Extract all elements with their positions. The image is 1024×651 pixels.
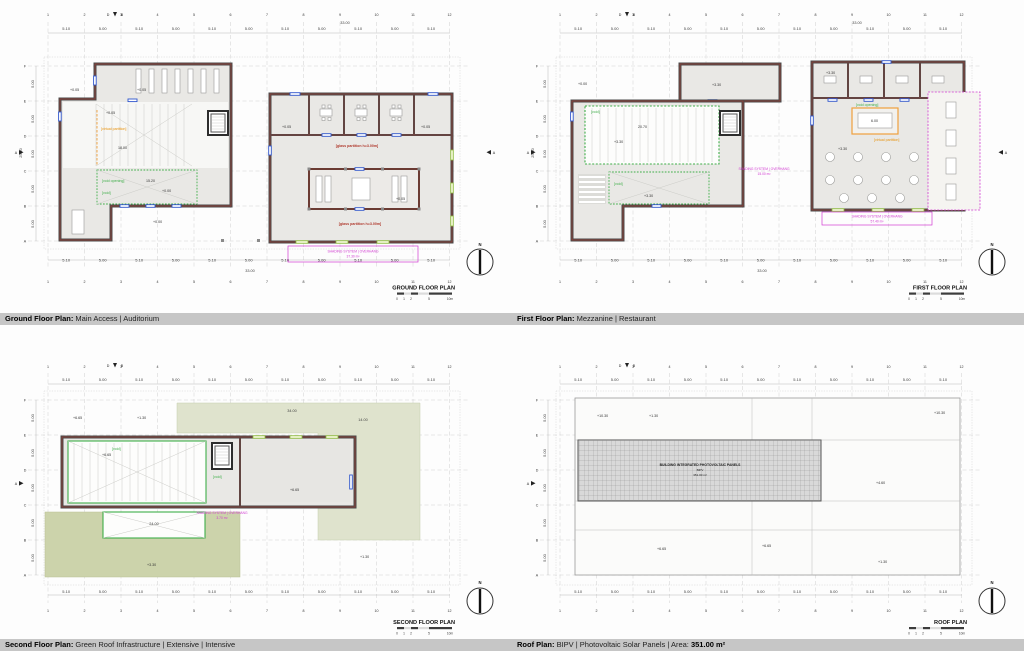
grid-numbers-top-0: 1	[47, 13, 49, 17]
level-label: +3.30	[147, 563, 156, 567]
grid-numbers-bottom-5: 6	[230, 609, 232, 613]
grid-numbers-top-5: 6	[742, 365, 744, 369]
quadrant-first-floor: 123456789101112 123456789101112 FEDCBA 5…	[512, 0, 1024, 325]
grid-numbers-bottom-4: 5	[705, 609, 707, 613]
scale-tick: 2	[410, 297, 412, 301]
dims-bottom-3: 5.00	[172, 258, 181, 263]
caption-second-floor: Second Floor Plan: Green Roof Infrastruc…	[0, 639, 512, 651]
dims-top-5: 5.00	[245, 26, 254, 31]
dims-bottom-2: 5.10	[647, 258, 656, 263]
grid-letters-left-4: B	[24, 538, 27, 542]
section-mark-a: A	[527, 151, 530, 155]
shading-overhang-label: SHADING SYSTEM | OVERHANG	[851, 215, 902, 219]
dims-top-1: 5.00	[99, 26, 108, 31]
dims-top-3: 5.00	[172, 377, 181, 382]
void-label: [void]	[102, 191, 111, 195]
dim-label: 34.00	[287, 409, 297, 413]
grid-numbers-bottom-5: 6	[230, 280, 232, 284]
void-label: [void]	[213, 475, 222, 479]
dims-bottom-2: 5.10	[647, 589, 656, 594]
grid-numbers-top-8: 9	[339, 365, 341, 369]
caption-text: Mezzanine | Restaurant	[575, 314, 656, 323]
dims-bottom-5: 5.00	[245, 258, 254, 263]
grid-numbers-bottom-11: 12	[448, 280, 452, 284]
dims-top: 5.105.005.105.005.105.005.105.005.105.00…	[574, 26, 948, 31]
dims-top-6: 5.10	[281, 26, 290, 31]
void-opening-label: [void opening]	[102, 179, 124, 183]
dims-bottom-4: 5.10	[208, 258, 217, 263]
first-floor-drawing: 123456789101112 123456789101112 FEDCBA 5…	[512, 0, 1024, 313]
architectural-sheet: 123456789101112 123456789101112 FEDCBA 5…	[0, 0, 1024, 651]
grid-numbers-top-10: 11	[923, 13, 927, 17]
dims-bottom-9: 5.00	[903, 589, 912, 594]
glass-partition-label: [glass partition h=3.00m]	[336, 144, 378, 148]
dims-bottom-6: 5.10	[793, 258, 802, 263]
grid-letters-left-5: A	[536, 573, 539, 577]
building	[62, 436, 355, 507]
grid-numbers-top-11: 12	[448, 365, 452, 369]
dims-top-5: 5.00	[245, 377, 254, 382]
grid-numbers-bottom-6: 7	[266, 280, 268, 284]
pv-subtitle-label: BIPV	[697, 468, 704, 472]
level-label: +0.05	[396, 197, 405, 201]
grid-numbers-bottom-10: 11	[923, 609, 927, 613]
shading-overhang-area: 37.30 m²	[346, 255, 360, 259]
dims-bottom-6: 5.10	[281, 589, 290, 594]
grid-numbers-bottom-9: 10	[887, 280, 891, 284]
level-label: +0.05	[137, 88, 146, 92]
grid-numbers-bottom-9: 10	[375, 280, 379, 284]
dims-bottom-2: 5.10	[135, 258, 144, 263]
scale-tick: 10m	[959, 632, 966, 636]
level-label: +6.65	[290, 488, 299, 492]
level-label: +6.65	[102, 453, 111, 457]
level-label: +0.05	[70, 88, 79, 92]
dims-bottom-4: 5.10	[720, 589, 729, 594]
total-dim-top: 33.00	[852, 21, 862, 25]
level-label: +0.00	[578, 82, 587, 86]
section-arrow-icon	[113, 363, 117, 368]
dims-bottom-1: 5.00	[611, 258, 620, 263]
dims-left-1: 5.00	[542, 448, 547, 457]
quadrant-second-floor: 123456789101112 123456789101112 FEDCBA 5…	[0, 325, 512, 651]
grid-numbers-top-1: 2	[84, 13, 86, 17]
grid-letters-left-5: A	[536, 239, 539, 243]
shading-overhang-label: SHADING SYSTEM | OVERHANG	[327, 250, 378, 254]
grid-numbers-bottom-11: 12	[960, 609, 964, 613]
level-label: +3.30	[712, 83, 721, 87]
level-label: +3.30	[838, 147, 847, 151]
dim-label: 24.00	[149, 522, 159, 526]
dims-top-9: 5.00	[903, 26, 912, 31]
north-label: N	[990, 242, 993, 247]
scale-bar: 0 1 2 5 10m	[908, 627, 965, 636]
grid-numbers-bottom-8: 9	[851, 280, 853, 284]
dims-left-2: 5.00	[30, 149, 35, 158]
caption-prefix: Second Floor Plan:	[5, 640, 73, 649]
dims-top-4: 5.10	[720, 26, 729, 31]
dim-label: 6.00	[871, 119, 878, 123]
grid-numbers-bottom-5: 6	[742, 280, 744, 284]
shading-overhang-label: SHADING SYSTEM | OVERHANG	[738, 167, 789, 171]
level-label: +6.65	[657, 547, 666, 551]
roof-plan-drawing: 123456789101112 123456789101112 FEDCBA 5…	[512, 325, 1024, 639]
grid-numbers-top-9: 10	[887, 365, 891, 369]
scale-tick: 0	[908, 632, 910, 636]
dims-bottom-8: 5.10	[866, 589, 875, 594]
dims-left-0: 5.00	[542, 79, 547, 88]
dims-top-10: 5.10	[939, 26, 948, 31]
virtual-partition-label: [virtual partition]	[874, 138, 899, 142]
dims-top-6: 5.10	[793, 377, 802, 382]
grid-numbers-bottom-3: 4	[669, 280, 671, 284]
grid-numbers-top-9: 10	[375, 365, 379, 369]
grid-numbers-top-9: 10	[887, 13, 891, 17]
connector-wing	[680, 64, 780, 102]
grid-numbers-top-0: 1	[47, 365, 49, 369]
upper-room	[242, 440, 350, 502]
dims-top-8: 5.10	[354, 26, 363, 31]
void-label: [void]	[112, 447, 121, 451]
grid-numbers-bottom-0: 1	[47, 280, 49, 284]
dims-left-0: 5.00	[542, 413, 547, 422]
section-mark-d: D	[619, 13, 622, 17]
grid-numbers-bottom-2: 3	[120, 280, 122, 284]
level-label: +10.30	[934, 411, 945, 415]
dim-label: 20.70	[638, 125, 647, 129]
grid-numbers-bottom-0: 1	[47, 609, 49, 613]
grid-numbers-bottom-1: 2	[84, 280, 86, 284]
level-label: +0.05	[106, 111, 115, 115]
dims-bottom-8: 5.10	[866, 258, 875, 263]
dims-top-2: 5.10	[135, 26, 144, 31]
grid-numbers-bottom-1: 2	[596, 609, 598, 613]
dims-top-4: 5.10	[720, 377, 729, 382]
scale-tick: 10m	[447, 632, 454, 636]
scale-tick: 2	[922, 297, 924, 301]
grid-letters-left-4: B	[536, 538, 539, 542]
north-label: N	[478, 242, 481, 247]
dims-top-7: 5.00	[318, 377, 327, 382]
grid-letters-left-5: A	[24, 239, 27, 243]
scale-bar: 0 1 2 5 10m	[908, 293, 965, 302]
grid-numbers-bottom-3: 4	[669, 609, 671, 613]
dims-bottom-3: 5.00	[172, 589, 181, 594]
grid-numbers-top-8: 9	[851, 365, 853, 369]
section-mark-a: A	[1005, 151, 1008, 155]
dims-bottom-5: 5.00	[245, 589, 254, 594]
level-label: +4.60	[876, 481, 885, 485]
level-label: +3.30	[614, 140, 623, 144]
grid-numbers-top-5: 6	[742, 13, 744, 17]
scale-tick: 1	[915, 632, 917, 636]
dims-top-4: 5.10	[208, 377, 217, 382]
dims-bottom-9: 5.00	[903, 258, 912, 263]
grid-numbers-top-6: 7	[778, 13, 780, 17]
dims-bottom-5: 5.00	[757, 258, 766, 263]
grid-letters-left-1: E	[536, 99, 539, 103]
shading-overhang-area: 57.40 m²	[870, 220, 884, 224]
scale-tick: 5	[940, 632, 942, 636]
dims-bottom-6: 5.10	[793, 589, 802, 594]
dims-top-1: 5.00	[99, 377, 108, 382]
grid-numbers-top-1: 2	[84, 365, 86, 369]
grid-numbers-top-3: 4	[157, 13, 159, 17]
dims-bottom-7: 5.00	[830, 258, 839, 263]
scale-tick: 5	[428, 297, 430, 301]
dims-top-0: 5.10	[62, 26, 71, 31]
dims-left-1: 5.00	[30, 114, 35, 123]
scale-tick: 2	[922, 632, 924, 636]
plaza-column	[221, 239, 224, 242]
dims-left-3: 5.00	[30, 184, 35, 193]
dims-bottom-3: 5.00	[684, 589, 693, 594]
grid-letters-left-4: B	[24, 204, 27, 208]
grid-numbers-bottom-4: 5	[193, 609, 195, 613]
grid-numbers-bottom-9: 10	[375, 609, 379, 613]
dims-left-2: 5.00	[30, 483, 35, 492]
total-dim-top: 33.00	[340, 21, 350, 25]
second-floor-drawing: 123456789101112 123456789101112 FEDCBA 5…	[0, 325, 512, 639]
grid-numbers-bottom-7: 8	[303, 609, 305, 613]
dims-left: 5.005.005.005.005.00	[542, 413, 547, 562]
grid-numbers-top-11: 12	[960, 13, 964, 17]
stair-core	[208, 111, 228, 135]
shading-overhang-area: 15.00 m²	[757, 172, 771, 176]
louver-area	[578, 174, 606, 204]
grid-numbers-top-6: 7	[266, 365, 268, 369]
ground-floor-drawing: 123456789101112 123456789101112 FEDCBA 5…	[0, 0, 512, 313]
grid-numbers-top-4: 5	[705, 13, 707, 17]
grid-numbers-bottom-2: 3	[632, 609, 634, 613]
grid-numbers-bottom-5: 6	[742, 609, 744, 613]
lobby-desk	[72, 210, 84, 234]
dim-label: 14.00	[358, 418, 368, 422]
grid-letters-left-3: C	[536, 503, 539, 507]
dims-bottom: 5.105.005.105.005.105.005.105.005.105.00…	[574, 589, 948, 594]
grid-numbers-bottom-2: 3	[120, 609, 122, 613]
dims-bottom-1: 5.00	[99, 258, 108, 263]
scale-tick: 10m	[959, 297, 966, 301]
scale-tick: 1	[403, 632, 405, 636]
grid-letters-left-0: F	[536, 64, 539, 68]
dims-top-8: 5.10	[866, 26, 875, 31]
auditorium	[308, 168, 421, 211]
grid-numbers-top-3: 4	[669, 13, 671, 17]
total-dim-bottom: 33.00	[757, 269, 767, 273]
dims-top-3: 5.00	[684, 377, 693, 382]
plan-title: FIRST FLOOR PLAN	[913, 286, 967, 292]
grid-numbers-top-1: 2	[596, 365, 598, 369]
shading-overhang-label: SHADING SYSTEM | OVERHANG	[196, 511, 247, 515]
grid-letters-left-5: A	[24, 573, 27, 577]
dims-bottom-3: 5.00	[684, 258, 693, 263]
grid-numbers-top-8: 9	[339, 13, 341, 17]
dims-bottom-4: 5.10	[208, 589, 217, 594]
grid-letters-left-3: C	[24, 169, 27, 173]
section-arrow-icon	[19, 481, 24, 486]
section-mark-d: D	[619, 364, 622, 368]
grid-letters-left-2: D	[536, 134, 539, 138]
grid-numbers-bottom: 123456789101112	[47, 609, 452, 613]
level-label: +1.30	[137, 416, 146, 420]
scale-tick: 10m	[447, 297, 454, 301]
dims-top: 5.105.005.105.005.105.005.105.005.105.00…	[62, 377, 436, 382]
dims-left: 5.005.005.005.005.00	[30, 413, 35, 562]
north-arrow-icon: N	[979, 580, 1005, 614]
grid-numbers-top-0: 1	[559, 365, 561, 369]
scale-tick: 0	[396, 297, 398, 301]
section-arrow-icon	[113, 12, 117, 17]
plan-title: SECOND FLOOR PLAN	[393, 620, 455, 626]
grid-numbers-bottom-10: 11	[411, 280, 415, 284]
dims-left-1: 5.00	[30, 448, 35, 457]
grid-numbers-bottom-6: 7	[778, 609, 780, 613]
grid-numbers-bottom-0: 1	[559, 609, 561, 613]
grid-numbers-bottom-1: 2	[84, 609, 86, 613]
dims-bottom-0: 5.10	[62, 589, 71, 594]
grid-numbers-bottom-7: 8	[303, 280, 305, 284]
scale-bar: 0 1 2 5 10m	[396, 293, 453, 302]
scale-tick: 0	[396, 632, 398, 636]
caption-ground-floor: Ground Floor Plan: Main Access | Auditor…	[0, 313, 512, 325]
grid-numbers-top-4: 5	[193, 365, 195, 369]
grid-numbers-top-5: 6	[230, 13, 232, 17]
grid-numbers-top-4: 5	[705, 365, 707, 369]
grid-numbers-top-6: 7	[778, 365, 780, 369]
dims-left-0: 5.00	[30, 413, 35, 422]
scale-tick: 1	[915, 297, 917, 301]
level-label: +10.30	[597, 414, 608, 418]
caption-text: BIPV | Photovoltaic Solar Panels | Area:	[555, 640, 691, 649]
caption-prefix: Roof Plan:	[517, 640, 555, 649]
dims-left-2: 5.00	[542, 149, 547, 158]
dims-top: 5.105.005.105.005.105.005.105.005.105.00…	[62, 26, 436, 31]
total-dim-bottom: 33.00	[245, 269, 255, 273]
grid-numbers-bottom-10: 11	[923, 280, 927, 284]
grid-numbers-bottom-11: 12	[448, 609, 452, 613]
dims-bottom-7: 5.00	[318, 589, 327, 594]
caption-text: Green Roof Infrastructure | Extensive | …	[73, 640, 235, 649]
dims-top-9: 5.00	[903, 377, 912, 382]
dims-bottom-10: 5.10	[427, 589, 436, 594]
section-mark-a: A	[15, 151, 18, 155]
green-roof-intensive	[45, 512, 240, 577]
grid-numbers-top-7: 8	[303, 365, 305, 369]
glass-partition-label: [glass partition h=3.00m]	[339, 222, 381, 226]
level-label: +0.05	[282, 125, 291, 129]
grid-numbers-top-10: 11	[923, 365, 927, 369]
dims-top-2: 5.10	[647, 26, 656, 31]
outdoor-terrace	[928, 92, 980, 210]
dims-bottom-7: 5.00	[830, 589, 839, 594]
grid-numbers-bottom-4: 5	[705, 280, 707, 284]
dims-left-0: 5.00	[30, 79, 35, 88]
north-label: N	[478, 580, 481, 585]
section-arrow-icon	[999, 150, 1004, 155]
dims-bottom-10: 5.10	[427, 258, 436, 263]
scale-tick: 5	[428, 632, 430, 636]
grid-numbers-top-10: 11	[411, 13, 415, 17]
level-label: +6.65	[762, 544, 771, 548]
grid-letters-left: FEDCBA	[536, 398, 539, 577]
grid-numbers-top-1: 2	[596, 13, 598, 17]
dims-bottom-1: 5.00	[99, 589, 108, 594]
grid-numbers-bottom-7: 8	[815, 609, 817, 613]
section-mark-b: B	[633, 364, 636, 368]
dims-bottom-2: 5.10	[135, 589, 144, 594]
level-label: +3.30	[826, 71, 835, 75]
scale-bar: 0 1 2 5 10m	[396, 627, 453, 636]
dims-left-4: 5.00	[542, 219, 547, 228]
grid-numbers-bottom-10: 11	[411, 609, 415, 613]
dims-top-5: 5.00	[757, 26, 766, 31]
dims-top-9: 5.00	[391, 377, 400, 382]
dims-top: 5.105.005.105.005.105.005.105.005.105.00…	[574, 377, 948, 382]
north-arrow-icon: N	[467, 580, 493, 614]
grid-letters-left-0: F	[24, 398, 27, 402]
level-label: +0.00	[153, 220, 162, 224]
level-label: +1.30	[360, 555, 369, 559]
grid-numbers-bottom-8: 9	[339, 280, 341, 284]
grid-numbers-bottom-3: 4	[157, 280, 159, 284]
section-arrow-icon	[487, 150, 492, 155]
grid-numbers-top-11: 12	[448, 13, 452, 17]
grid-numbers-top-5: 6	[230, 365, 232, 369]
dims-top-3: 5.00	[172, 26, 181, 31]
dims-top-6: 5.10	[793, 26, 802, 31]
dims-bottom: 5.105.005.105.005.105.005.105.005.105.00…	[62, 589, 436, 594]
grid-numbers-top-7: 8	[303, 13, 305, 17]
dims-left-3: 5.00	[30, 518, 35, 527]
shading-overhang-area: 3.70 m²	[216, 516, 228, 520]
grid-letters-left-0: F	[536, 398, 539, 402]
dim-label: 15.20	[146, 179, 155, 183]
section-mark-a: A	[15, 482, 18, 486]
dims-bottom-10: 5.10	[939, 258, 948, 263]
section-arrow-icon	[625, 363, 629, 368]
void-label: [void]	[614, 182, 623, 186]
dims-top-3: 5.00	[684, 26, 693, 31]
dims-top-2: 5.10	[647, 377, 656, 382]
level-label: +1.30	[878, 560, 887, 564]
grid-numbers-top-3: 4	[669, 365, 671, 369]
scale-tick: 0	[908, 297, 910, 301]
grid-numbers-bottom: 123456789101112	[47, 280, 452, 284]
grid-numbers-bottom-7: 8	[815, 280, 817, 284]
grid-numbers-bottom-8: 9	[339, 609, 341, 613]
dims-top-9: 5.00	[391, 26, 400, 31]
dims-left-1: 5.00	[542, 114, 547, 123]
grid-numbers-bottom-11: 12	[960, 280, 964, 284]
grid-numbers-top-7: 8	[815, 365, 817, 369]
level-label: +0.05	[421, 125, 430, 129]
void-opening-label: [void opening]	[856, 103, 878, 107]
dims-top-7: 5.00	[830, 26, 839, 31]
pv-area-label: 351.00 m²	[693, 473, 707, 477]
dims-left-2: 5.00	[542, 483, 547, 492]
dims-left-4: 5.00	[30, 219, 35, 228]
dims-bottom-0: 5.10	[574, 589, 583, 594]
dims-top-6: 5.10	[281, 377, 290, 382]
grid-numbers-bottom-1: 2	[596, 280, 598, 284]
virtual-partition-label: [virtual partition]	[101, 127, 126, 131]
dims-top-8: 5.10	[866, 377, 875, 382]
grid-letters-left-0: F	[24, 64, 27, 68]
caption-roof-plan: Roof Plan: BIPV | Photovoltaic Solar Pan…	[512, 639, 1024, 651]
dims-top-8: 5.10	[354, 377, 363, 382]
dims-top-2: 5.10	[135, 377, 144, 382]
